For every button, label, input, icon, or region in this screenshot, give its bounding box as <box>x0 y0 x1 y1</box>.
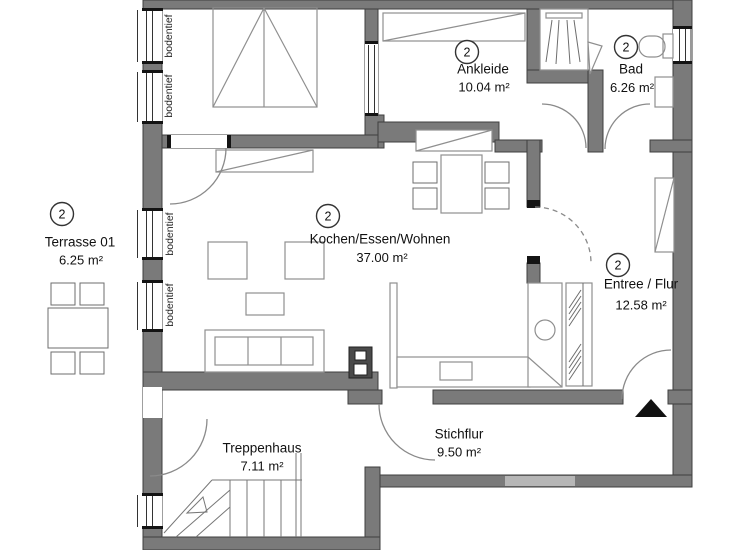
label-terrasse: 2 Terrasse 01 6.25 m² <box>45 203 116 268</box>
sliding-door-arc <box>535 207 591 263</box>
room-name: Entree / Flur <box>604 277 679 292</box>
bed-symbol <box>213 8 317 107</box>
bedroom-closet-opening <box>365 41 378 116</box>
unit-badge-number: 2 <box>615 259 622 273</box>
wardrobe-ankleide <box>383 13 525 41</box>
window-living-2 <box>137 280 163 332</box>
shower <box>540 9 602 74</box>
kitchen-tall-cabinet <box>566 283 592 386</box>
unit-badge-number: 2 <box>623 41 630 55</box>
washbasin <box>655 77 673 107</box>
room-area: 9.50 m² <box>437 445 482 460</box>
armchair-right <box>285 242 324 279</box>
room-name: Stichflur <box>435 427 484 442</box>
window-stairwell <box>137 493 163 529</box>
room-name: Kochen/Essen/Wohnen <box>310 232 451 247</box>
coffee-table <box>246 293 284 315</box>
terrace-set <box>48 283 108 374</box>
room-area: 12.58 m² <box>615 298 667 313</box>
unit-badge-number: 2 <box>59 208 66 222</box>
window-bedroom-1 <box>137 8 163 64</box>
toilet <box>639 34 673 58</box>
stichflur-door-arc <box>379 404 435 460</box>
furniture <box>48 8 674 388</box>
window-annotation: bodentief <box>163 14 175 57</box>
sofa <box>205 330 324 372</box>
shower-door <box>588 42 602 74</box>
kitchen-counter <box>390 283 562 388</box>
wardrobe-entree <box>655 178 674 252</box>
sideboard-dining <box>416 130 492 151</box>
window-annotation: bodentief <box>163 74 175 117</box>
window-annotation: bodentief <box>164 212 176 255</box>
dining-set <box>413 155 509 213</box>
room-area: 7.11 m² <box>240 459 284 474</box>
ankleide-door-arc <box>542 104 586 148</box>
window-living-1 <box>137 208 163 260</box>
label-bad: 2 Bad 6.26 m² <box>610 36 655 96</box>
wardrobe-living <box>216 150 313 172</box>
label-wohnen: 2 Kochen/Essen/Wohnen 37.00 m² <box>310 205 451 266</box>
room-name: Treppenhaus <box>222 441 301 456</box>
room-name: Terrasse 01 <box>45 235 116 250</box>
bath-door-arc <box>605 104 650 149</box>
entrance-triangle-marker <box>635 399 667 417</box>
label-treppenhaus: Treppenhaus 7.11 m² <box>222 441 301 474</box>
room-area: 10.04 m² <box>458 80 510 95</box>
unit-badge-number: 2 <box>464 46 471 60</box>
label-ankleide: 2 Ankleide 10.04 m² <box>456 41 511 95</box>
room-area: 37.00 m² <box>356 250 408 265</box>
room-area: 6.25 m² <box>59 253 104 268</box>
apartment-entrance-door-arc <box>622 350 671 399</box>
installation-shaft <box>349 347 372 378</box>
stairwell-door-opening <box>143 387 162 418</box>
room-area: 6.26 m² <box>610 80 655 95</box>
room-name: Bad <box>619 62 643 77</box>
label-stichflur: Stichflur 9.50 m² <box>435 427 484 460</box>
room-name: Ankleide <box>457 62 509 77</box>
label-entree: 2 Entree / Flur 12.58 m² <box>604 254 679 313</box>
sliding-door-jamb-bottom <box>527 256 540 264</box>
armchair-left <box>208 242 247 279</box>
unit-badge-number: 2 <box>325 210 332 224</box>
window-bedroom-2 <box>137 70 163 124</box>
floor-plan-page: 2 Terrasse 01 6.25 m² 2 Ankleide 10.04 m… <box>0 0 731 550</box>
window-annotation: bodentief <box>164 283 176 326</box>
living-door-opening <box>167 135 231 148</box>
window-bath <box>673 26 692 64</box>
floor-plan-drawing: 2 Terrasse 01 6.25 m² 2 Ankleide 10.04 m… <box>0 0 731 550</box>
